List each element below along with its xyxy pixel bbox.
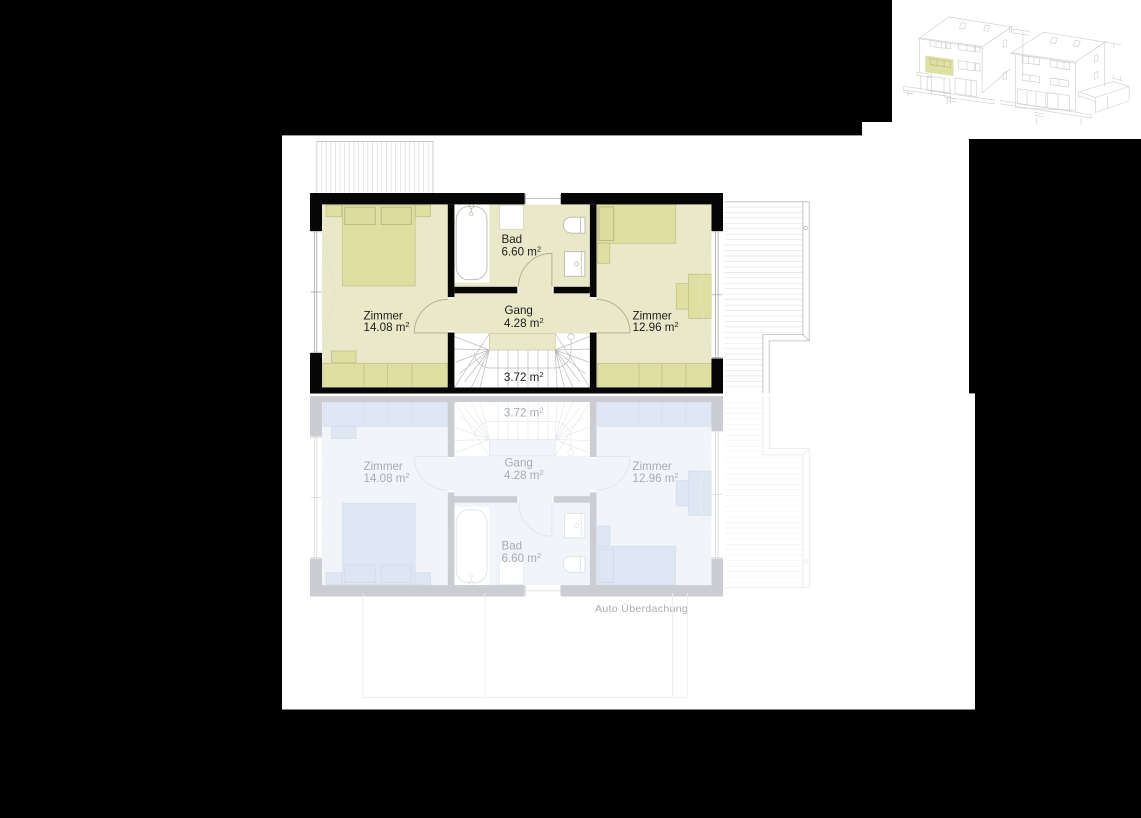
svg-text:4.28 m2: 4.28 m2 <box>504 316 544 330</box>
svg-text:Bad: Bad <box>502 233 523 246</box>
svg-text:Auto Überdachung: Auto Überdachung <box>595 603 688 615</box>
svg-text:3.72 m2: 3.72 m2 <box>504 406 544 420</box>
svg-text:14.08 m2: 14.08 m2 <box>364 471 410 485</box>
svg-text:6.60 m2: 6.60 m2 <box>502 244 542 258</box>
svg-text:6.60 m2: 6.60 m2 <box>502 551 542 565</box>
svg-text:Gang: Gang <box>505 457 533 470</box>
svg-text:12.96 m2: 12.96 m2 <box>633 471 679 485</box>
svg-text:Gang: Gang <box>505 304 533 317</box>
svg-text:Bad: Bad <box>502 540 523 553</box>
svg-text:4.28 m2: 4.28 m2 <box>504 468 544 482</box>
svg-text:14.08 m2: 14.08 m2 <box>364 320 410 334</box>
svg-text:3.72 m2: 3.72 m2 <box>504 370 544 384</box>
svg-text:12.96 m2: 12.96 m2 <box>633 320 679 334</box>
